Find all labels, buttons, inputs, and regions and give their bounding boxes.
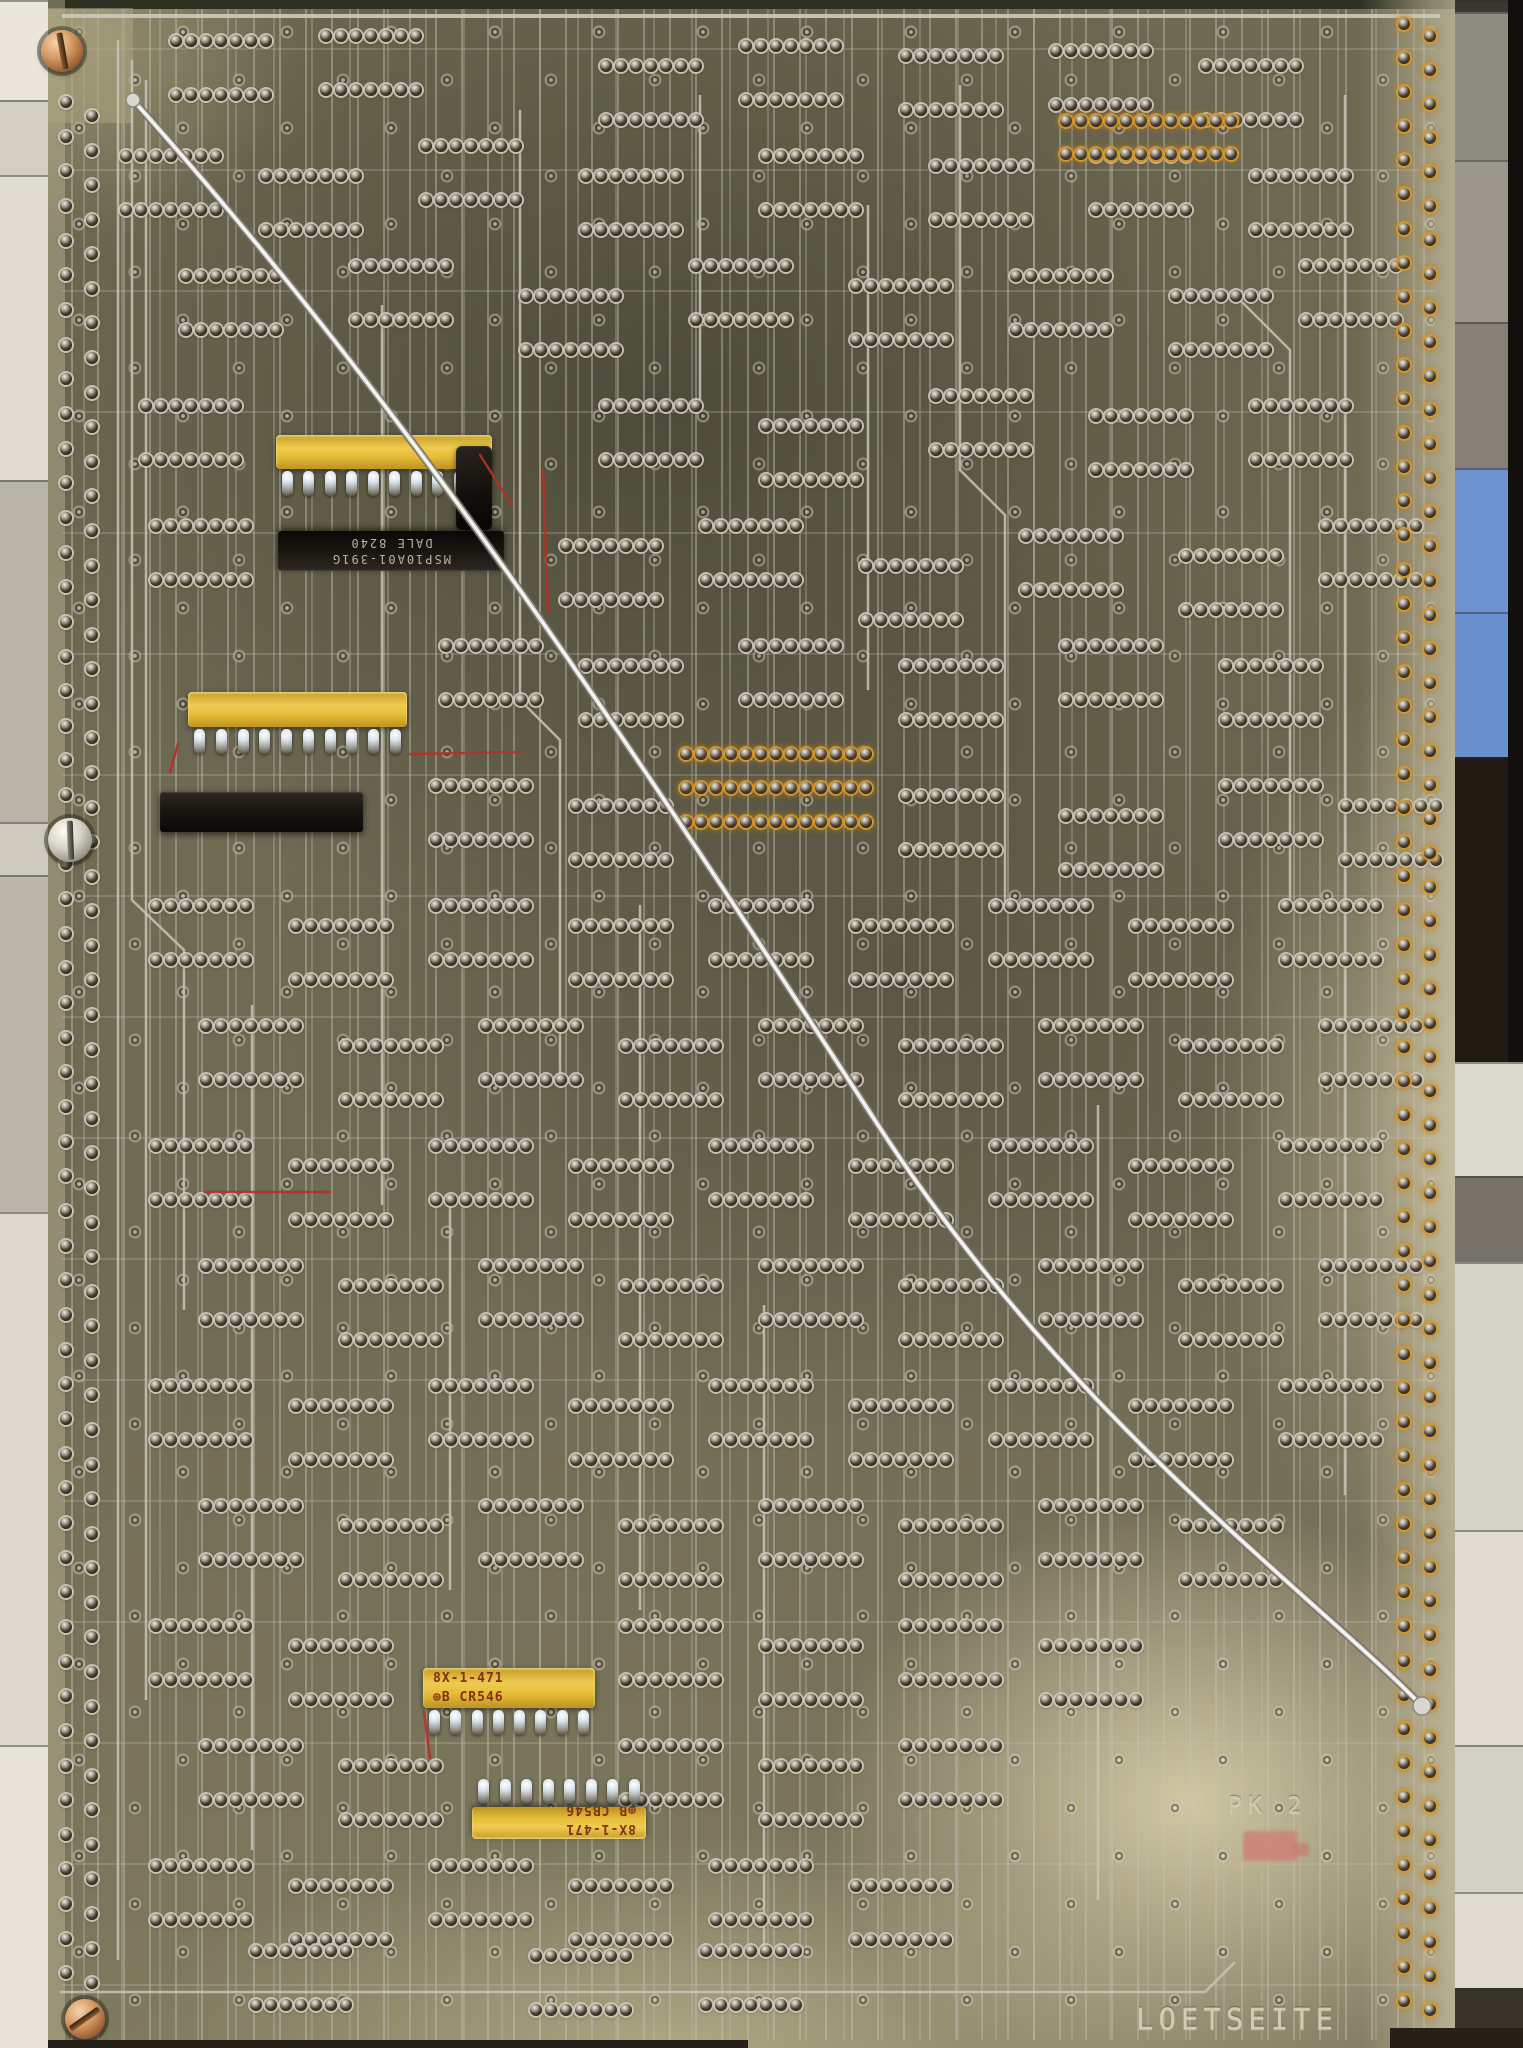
jumper-wire	[133, 100, 1422, 1706]
solder-blob	[126, 93, 140, 107]
jumper-wire	[133, 100, 1422, 1706]
red-wire	[170, 744, 178, 772]
red-wire	[480, 455, 512, 505]
red-wire	[543, 470, 548, 612]
solder-blob	[1413, 1697, 1431, 1715]
red-wire	[424, 1712, 430, 1758]
board-edge-shadow	[48, 2040, 748, 2048]
jumper-wire	[133, 100, 1422, 1706]
board-edge-shadow	[1390, 2028, 1523, 2048]
red-wire	[410, 752, 520, 754]
jumper-wire-overlay	[0, 0, 1523, 2048]
pcb-photo: 8X-1-471⊕B CR5468X-1-471⊕B CB546MSP10A01…	[0, 0, 1523, 2048]
